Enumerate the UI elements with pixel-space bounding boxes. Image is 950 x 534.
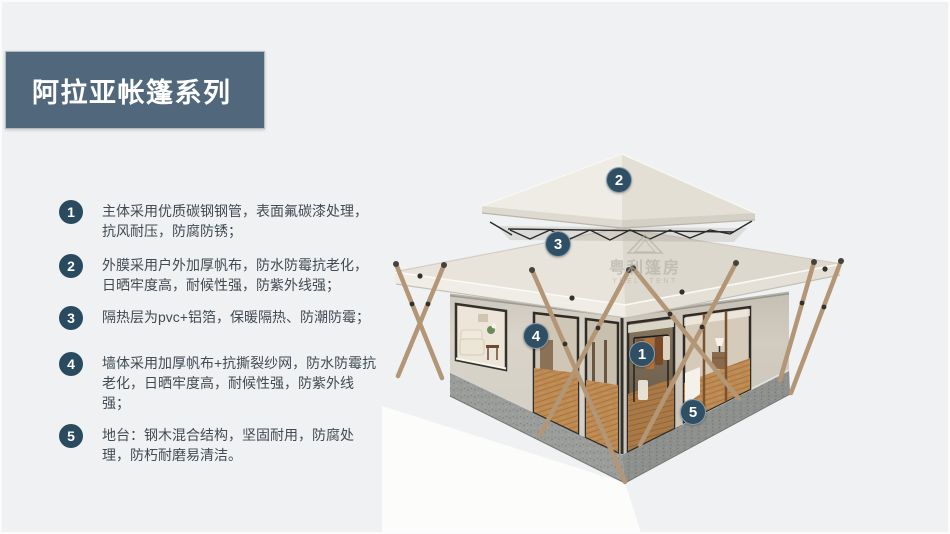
feature-text: 墙体采用加厚帆布+抗撕裂纱网，防水防霉抗老化，日晒牢度高，耐候性强，防紫外线强；	[102, 353, 380, 413]
slide-page: 阿拉亚帐篷系列 1 主体采用优质碳钢钢管，表面氟碳漆处理，抗风耐压，防腐防锈； …	[0, 0, 950, 534]
feature-number-badge: 4	[59, 352, 83, 376]
feature-item-4: 4 墙体采用加厚帆布+抗撕裂纱网，防水防霉抗老化，日晒牢度高，耐候性强，防紫外线…	[59, 353, 389, 413]
feature-text: 地台：钢木混合结构，坚固耐用，防腐处理，防朽耐磨易清洁。	[102, 425, 380, 465]
photo-callout-4: 4	[523, 323, 549, 349]
feature-text: 外膜采用户外加厚帆布，防水防霉抗老化，日晒牢度高，耐候性强，防紫外线强；	[102, 255, 380, 295]
feature-number-badge: 3	[59, 306, 83, 330]
feature-text: 主体采用优质碳钢钢管，表面氟碳漆处理，抗风耐压，防腐防锈；	[102, 201, 380, 241]
tent-photo	[382, 142, 950, 534]
feature-number-badge: 2	[59, 254, 83, 278]
left-window	[456, 304, 506, 370]
title-banner: 阿拉亚帐篷系列	[5, 51, 265, 129]
feature-item-1: 1 主体采用优质碳钢钢管，表面氟碳漆处理，抗风耐压，防腐防锈；	[59, 201, 389, 241]
page-title: 阿拉亚帐篷系列	[6, 71, 232, 110]
feature-item-3: 3 隔热层为pvc+铝箔，保暖隔热、防潮防霉；	[59, 307, 389, 330]
feature-item-2: 2 外膜采用户外加厚帆布，防水防霉抗老化，日晒牢度高，耐候性强，防紫外线强；	[59, 255, 389, 295]
photo-callout-5: 5	[680, 399, 706, 425]
photo-callout-3: 3	[545, 231, 571, 257]
feature-item-5: 5 地台：钢木混合结构，坚固耐用，防腐处理，防朽耐磨易清洁。	[59, 425, 389, 465]
right-glass-clothes	[628, 317, 674, 451]
feature-number-badge: 5	[59, 424, 83, 448]
photo-callout-2: 2	[606, 167, 632, 193]
feature-number-badge: 1	[59, 200, 83, 224]
feature-text: 隔热层为pvc+铝箔，保暖隔热、防潮防霉；	[102, 307, 380, 327]
photo-callout-1: 1	[629, 341, 655, 367]
